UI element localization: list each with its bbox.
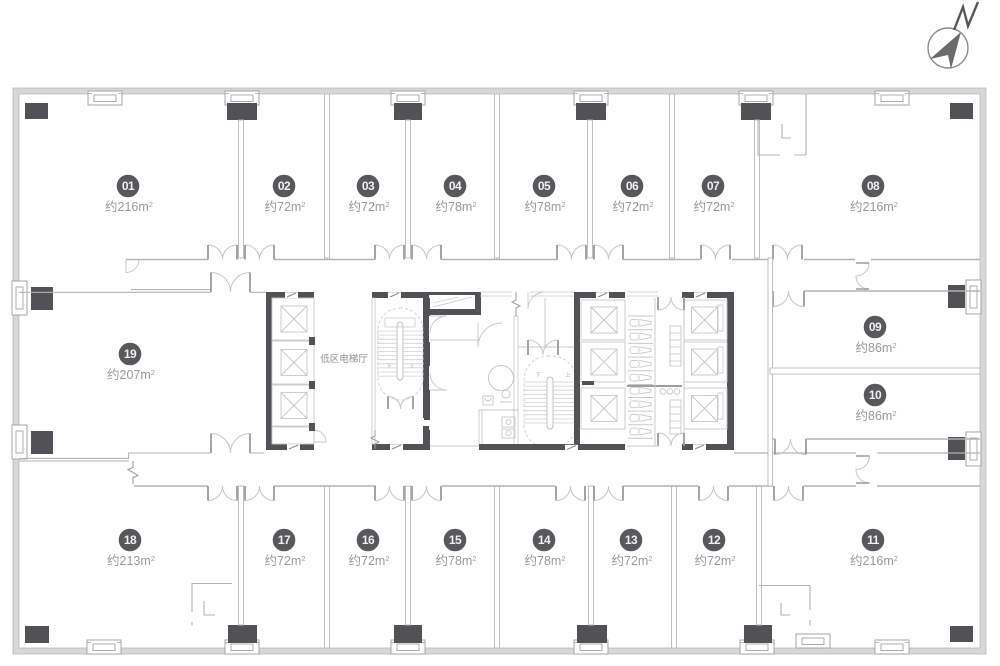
svg-text:约86m2: 约86m2 bbox=[856, 340, 897, 355]
svg-text:11: 11 bbox=[867, 533, 880, 547]
svg-text:18: 18 bbox=[124, 533, 137, 547]
svg-text:06: 06 bbox=[626, 179, 639, 193]
svg-text:17: 17 bbox=[278, 533, 291, 547]
svg-text:约72m2: 约72m2 bbox=[694, 199, 735, 214]
svg-text:04: 04 bbox=[449, 179, 462, 193]
svg-text:约78m2: 约78m2 bbox=[436, 553, 477, 568]
svg-text:01: 01 bbox=[122, 179, 135, 193]
svg-text:低区电梯厅: 低区电梯厅 bbox=[320, 353, 368, 365]
svg-text:约72m2: 约72m2 bbox=[349, 199, 390, 214]
svg-text:03: 03 bbox=[362, 179, 375, 193]
svg-text:07: 07 bbox=[707, 179, 720, 193]
svg-text:09: 09 bbox=[869, 320, 882, 334]
svg-text:约216m2: 约216m2 bbox=[105, 199, 153, 214]
svg-text:约78m2: 约78m2 bbox=[525, 553, 566, 568]
svg-text:约72m2: 约72m2 bbox=[265, 199, 306, 214]
svg-text:约72m2: 约72m2 bbox=[349, 553, 390, 568]
svg-text:10: 10 bbox=[869, 388, 882, 402]
svg-text:02: 02 bbox=[278, 179, 291, 193]
svg-text:约216m2: 约216m2 bbox=[850, 199, 898, 214]
svg-text:约78m2: 约78m2 bbox=[436, 199, 477, 214]
svg-text:16: 16 bbox=[362, 533, 375, 547]
svg-text:14: 14 bbox=[538, 533, 551, 547]
svg-text:约213m2: 约213m2 bbox=[107, 553, 155, 568]
svg-text:15: 15 bbox=[449, 533, 462, 547]
svg-text:05: 05 bbox=[538, 179, 551, 193]
svg-text:19: 19 bbox=[124, 347, 137, 361]
svg-text:约72m2: 约72m2 bbox=[265, 553, 306, 568]
svg-text:约86m2: 约86m2 bbox=[856, 408, 897, 423]
svg-text:约216m2: 约216m2 bbox=[850, 553, 898, 568]
svg-text:约72m2: 约72m2 bbox=[612, 553, 653, 568]
svg-text:下: 下 bbox=[535, 372, 541, 379]
svg-text:下: 下 bbox=[386, 363, 392, 370]
svg-text:约78m2: 约78m2 bbox=[525, 199, 566, 214]
svg-text:约72m2: 约72m2 bbox=[695, 553, 736, 568]
svg-text:约207m2: 约207m2 bbox=[107, 367, 155, 382]
svg-text:上: 上 bbox=[565, 371, 571, 379]
svg-text:13: 13 bbox=[625, 533, 638, 547]
svg-text:上: 上 bbox=[409, 362, 415, 370]
svg-text:08: 08 bbox=[867, 179, 880, 193]
svg-text:12: 12 bbox=[708, 533, 721, 547]
svg-text:约72m2: 约72m2 bbox=[613, 199, 654, 214]
